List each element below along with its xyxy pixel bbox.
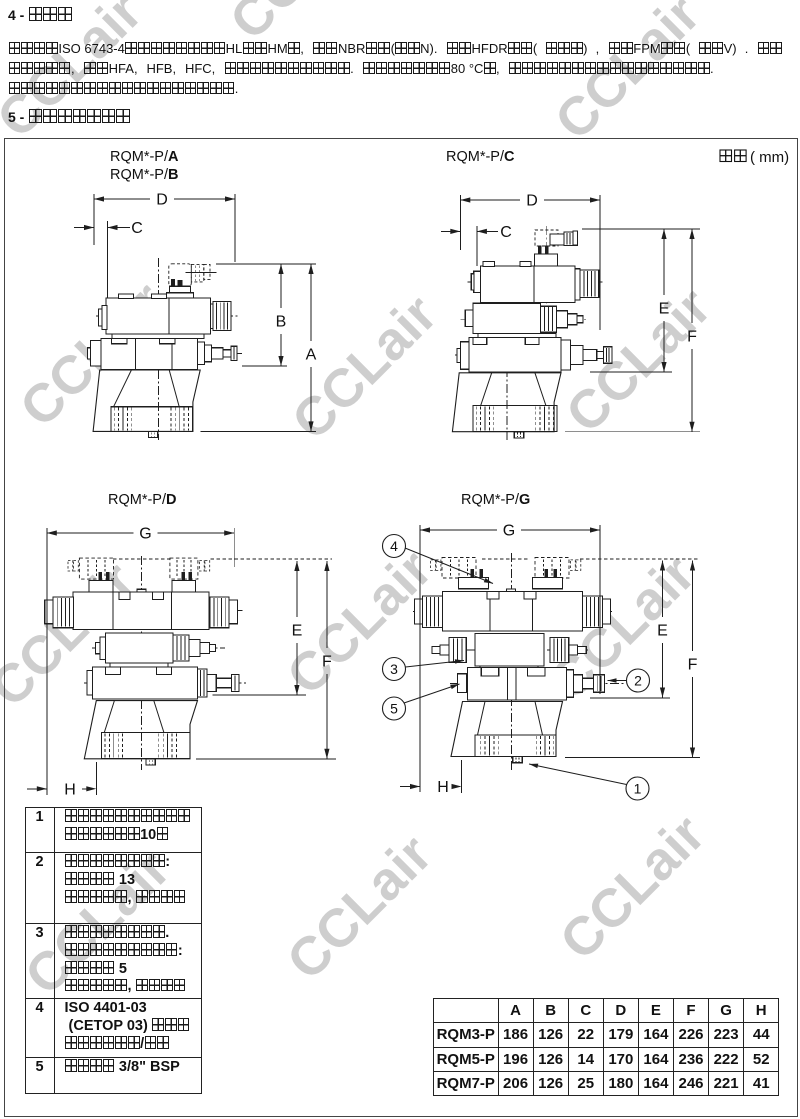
svg-text:C: C (131, 220, 143, 237)
svg-text:G: G (503, 523, 515, 540)
svg-text:D: D (526, 193, 538, 210)
svg-text:RQM*-P/G: RQM*-P/G (461, 492, 530, 508)
svg-text:3: 3 (390, 661, 398, 677)
svg-text:E: E (292, 623, 303, 640)
svg-text:A: A (306, 347, 317, 364)
svg-text:F: F (322, 654, 332, 671)
svg-text:F: F (688, 657, 698, 674)
svg-text:E: E (657, 623, 668, 640)
svg-text:RQM*-P/B: RQM*-P/B (110, 167, 178, 183)
svg-text:2: 2 (634, 673, 642, 689)
svg-text:D: D (156, 192, 168, 209)
svg-text:RQM*-P/D: RQM*-P/D (108, 492, 176, 508)
svg-text:1: 1 (634, 781, 642, 797)
svg-text:4: 4 (390, 538, 398, 554)
svg-text:F: F (687, 329, 697, 346)
svg-text:RQM*-P/C: RQM*-P/C (446, 149, 515, 165)
svg-text:RQM*-P/A: RQM*-P/A (110, 149, 179, 165)
svg-text:C: C (500, 224, 512, 241)
svg-text:( mm): ( mm) (750, 149, 789, 166)
svg-text:E: E (659, 301, 670, 318)
svg-text:H: H (437, 779, 449, 796)
svg-text:B: B (276, 314, 287, 331)
svg-text:5: 5 (390, 701, 398, 717)
svg-text:G: G (139, 526, 151, 543)
svg-text:H: H (64, 781, 76, 798)
